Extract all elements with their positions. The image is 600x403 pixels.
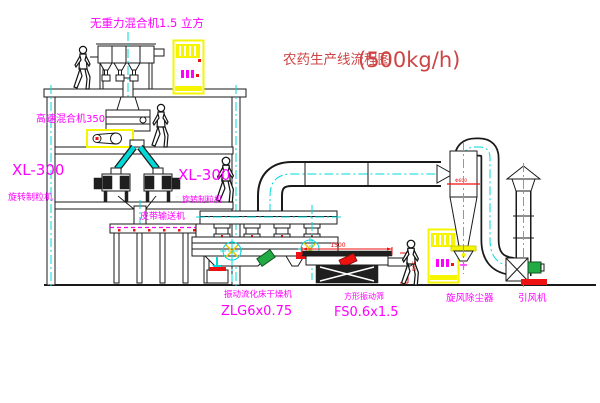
label-granulator-left-name: 旋转制粒机: [8, 191, 53, 203]
control-cabinet-icon: [174, 41, 204, 94]
process-flow-diagram: Φ600 无重力混合机1.5 立方 农药生产线流程图 (500kg/h) 高速混…: [0, 0, 600, 403]
sieve-height-dim: 545: [410, 261, 416, 272]
label-dryer-model: ZLG6x0.75: [221, 304, 292, 319]
label-fan-name: 引风机: [518, 292, 547, 304]
cyclone-diameter-dim: Φ600: [455, 178, 467, 184]
label-belt-conveyor: 皮带输送机: [140, 210, 185, 222]
label-sieve-model: FS0.6x1.5: [334, 305, 399, 320]
person-icon: [152, 104, 168, 147]
granulator-left: [94, 168, 130, 202]
label-granulator-right-name: 旋转制粒机: [182, 194, 222, 204]
label-sieve-name: 方形振动筛: [344, 291, 384, 301]
label-gravity-mixer: 无重力混合机1.5 立方: [90, 16, 204, 30]
mixer-discharge-valves: [100, 63, 140, 81]
diagram-canvas: Φ600 无重力混合机1.5 立方 农药生产线流程图 (500kg/h) 高速混…: [0, 0, 600, 403]
person-icon: [74, 46, 90, 89]
label-high-speed-mixer: 高速混合机350: [36, 112, 105, 125]
induced-draft-fan: [506, 258, 547, 285]
sieve-length-dim: 1500: [330, 242, 345, 249]
label-granulator-left-model: XL-300: [12, 161, 64, 179]
title-capacity: (500kg/h): [358, 48, 460, 72]
dryer-exhaust-duct: [270, 161, 453, 213]
label-cyclone-name: 旋风除尘器: [446, 292, 494, 304]
vibrating-sieve: [296, 247, 413, 283]
fan-motor-icon: [528, 262, 541, 273]
dryer-dome-vents: [214, 224, 320, 237]
label-granulator-right-model: XL-300: [178, 166, 230, 184]
control-cabinet-icon: [429, 230, 459, 283]
granulator-right: [144, 168, 180, 202]
label-dryer-name: 振动流化床干燥机: [224, 289, 293, 300]
